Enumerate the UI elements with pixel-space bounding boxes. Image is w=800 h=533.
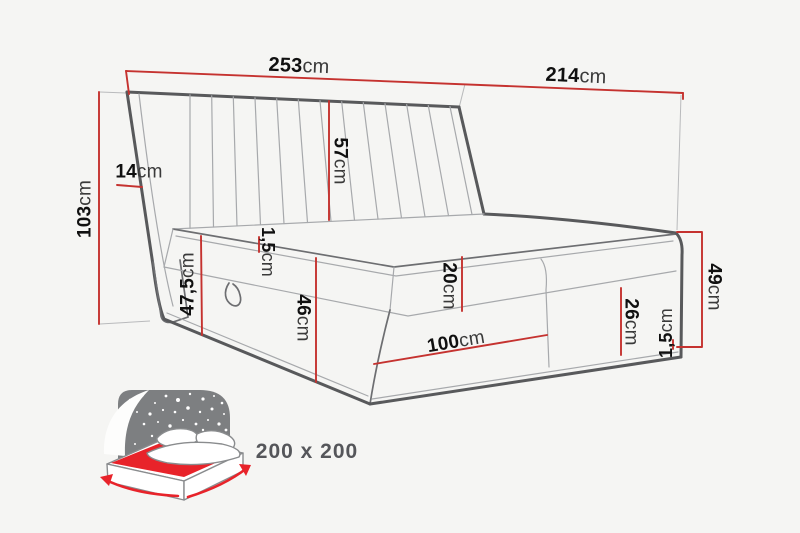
base-front-seam — [546, 290, 549, 367]
dim-label-total-width: 253cm — [268, 55, 330, 77]
bed-line-drawing — [0, 0, 800, 533]
dim-label-sleep-height: 47,5cm — [179, 252, 198, 316]
storage-handle-loop — [225, 283, 240, 306]
dim-label-mattress-height: 20cm — [440, 262, 459, 309]
mattress-size-label: 200 x 200 — [256, 440, 358, 464]
dim-label-topper-left: 1,5cm — [259, 227, 277, 277]
dim-label-wing-width: 14cm — [115, 163, 162, 182]
mattress-bottom-seam — [164, 267, 676, 316]
dim-label-headboard-height: 103cm — [76, 180, 95, 238]
dim-label-foot-section: 26cm — [622, 298, 641, 345]
bed-dimension-diagram: 253cm 214cm 103cm 14cm 57cm 1,5cm 47,5cm… — [0, 0, 800, 533]
dim-label-topper-right: 1,5cm — [657, 308, 675, 358]
dim-label-headboard-above-mattress: 57cm — [331, 137, 350, 184]
dim-line-14 — [117, 185, 142, 187]
dim-line-47-5 — [201, 236, 202, 335]
mattress-size-icon — [100, 390, 251, 500]
dim-label-foot-height: 49cm — [705, 263, 724, 310]
dim-label-base-height: 46cm — [294, 294, 313, 341]
bed-base-drawing — [164, 233, 682, 404]
dim-label-length: 214cm — [545, 65, 607, 88]
